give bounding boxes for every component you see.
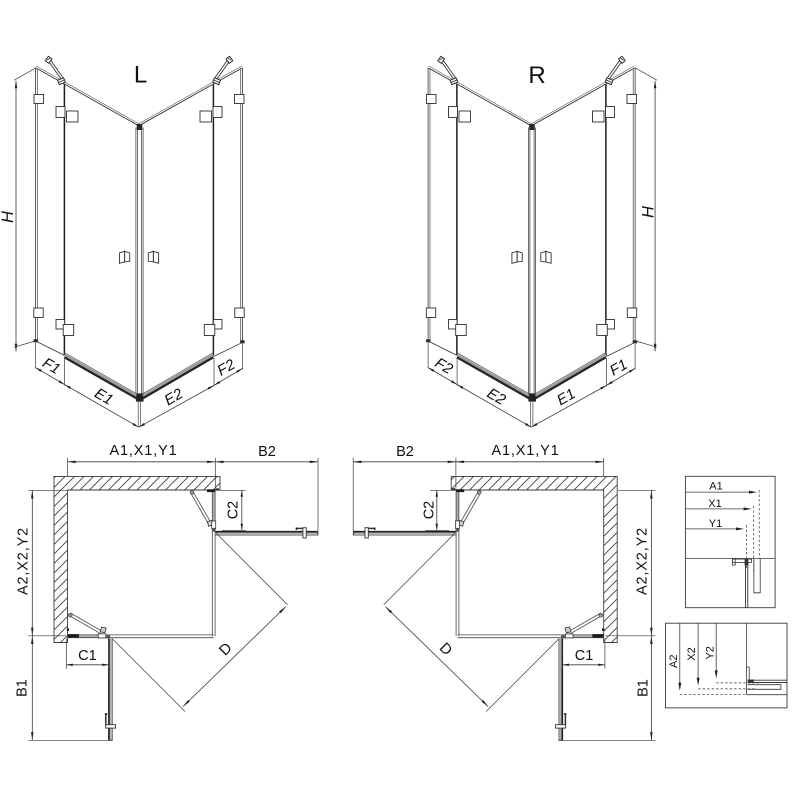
svg-text:H: H (639, 206, 657, 218)
svg-text:R: R (528, 62, 545, 89)
svg-text:B1: B1 (635, 679, 651, 697)
svg-text:C2: C2 (421, 501, 437, 520)
svg-text:A2,X2,Y2: A2,X2,Y2 (15, 527, 31, 595)
svg-text:C1: C1 (78, 648, 97, 664)
svg-text:A1,X1,Y1: A1,X1,Y1 (491, 443, 559, 459)
svg-text:A1: A1 (709, 480, 722, 492)
svg-text:B2: B2 (258, 444, 276, 460)
svg-text:A2: A2 (668, 654, 680, 667)
svg-text:X2: X2 (686, 647, 698, 660)
svg-text:Y2: Y2 (704, 646, 716, 659)
svg-text:H: H (0, 211, 17, 223)
svg-text:X1: X1 (708, 498, 721, 510)
svg-text:C2: C2 (225, 501, 241, 520)
svg-text:L: L (134, 62, 147, 89)
svg-text:B1: B1 (14, 679, 30, 697)
svg-text:Y1: Y1 (709, 518, 722, 530)
svg-text:C1: C1 (575, 648, 594, 664)
svg-text:B2: B2 (396, 444, 414, 460)
svg-text:A2,X2,Y2: A2,X2,Y2 (634, 527, 650, 595)
svg-text:A1,X1,Y1: A1,X1,Y1 (109, 443, 177, 459)
